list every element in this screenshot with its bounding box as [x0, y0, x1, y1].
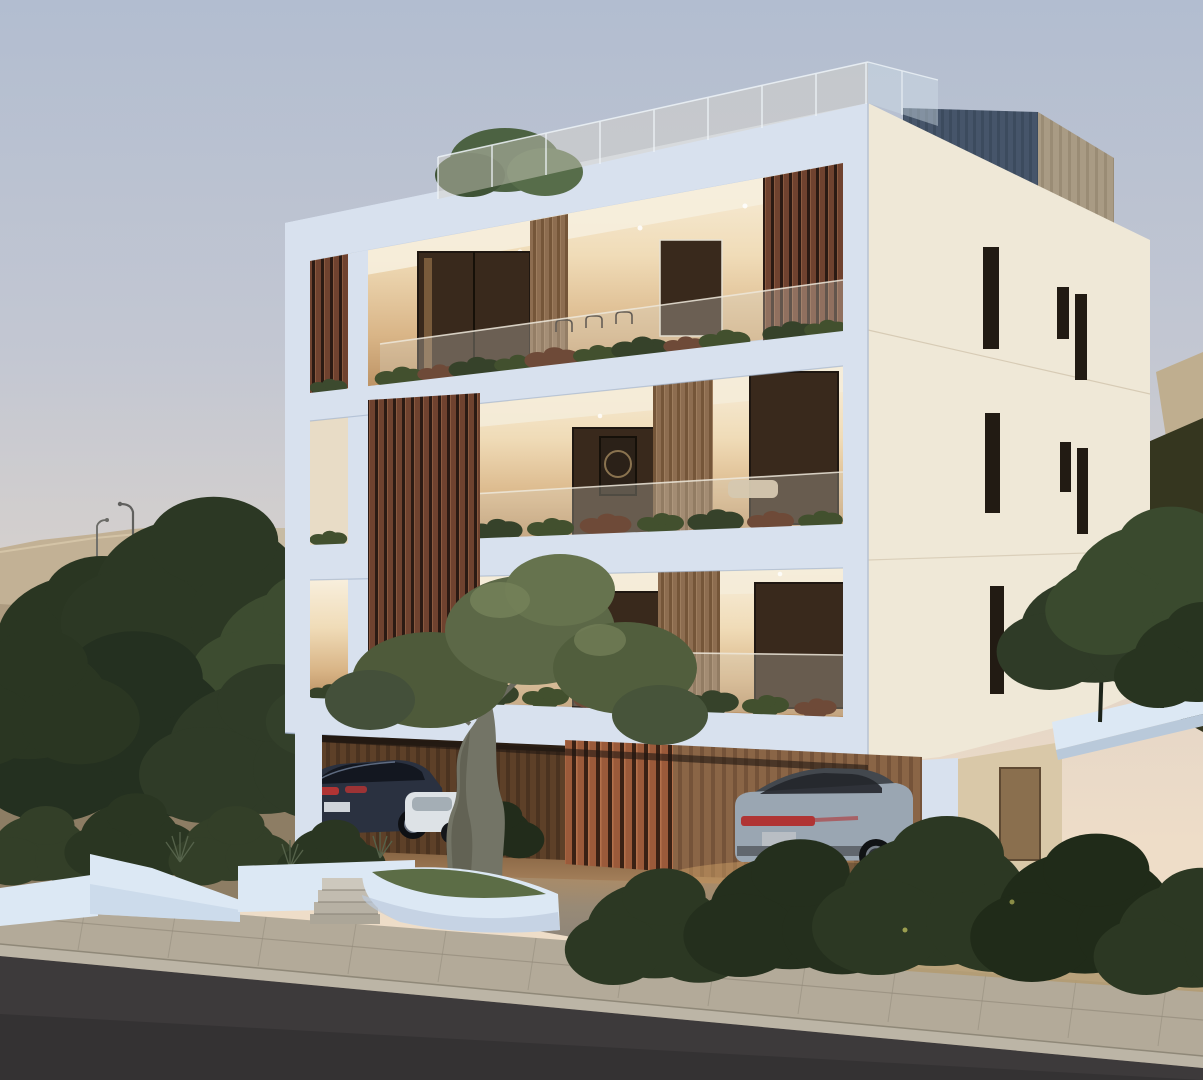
flower-dot: [1010, 900, 1015, 905]
bay-wall: [310, 417, 348, 545]
taillight-strip: [815, 818, 858, 820]
entry-door: [1000, 768, 1040, 860]
left-pillar: [285, 218, 310, 735]
louvre-screen: [310, 254, 348, 393]
taillight-bar: [741, 816, 815, 826]
license-plate: [324, 802, 350, 812]
flower-dot: [903, 928, 908, 933]
left-bay: [308, 254, 348, 704]
mullion-pillar: [348, 250, 368, 703]
scene-canvas: [0, 0, 1203, 1080]
taillight: [345, 786, 367, 793]
white-car-window: [412, 797, 452, 811]
architectural-render: [0, 0, 1203, 1080]
corner-pillar: [843, 103, 868, 765]
